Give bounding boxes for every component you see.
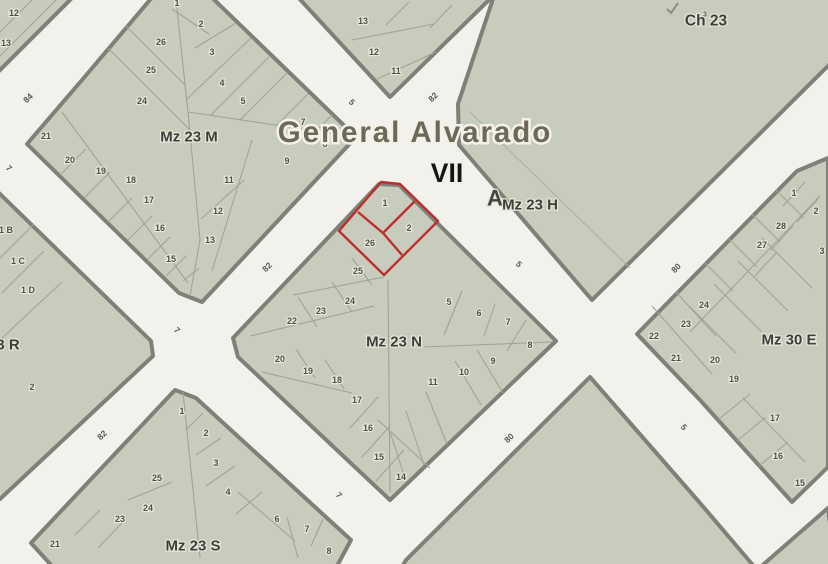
svg-text:2: 2 — [406, 223, 411, 233]
svg-text:3: 3 — [213, 458, 218, 468]
svg-text:13: 13 — [358, 16, 368, 26]
svg-text:2: 2 — [29, 382, 34, 392]
svg-text:8: 8 — [527, 340, 532, 350]
svg-text:7: 7 — [304, 524, 309, 534]
svg-text:27: 27 — [757, 240, 767, 250]
svg-text:3: 3 — [819, 246, 824, 256]
svg-text:24: 24 — [137, 96, 147, 106]
svg-text:1: 1 — [174, 0, 179, 8]
svg-text:1: 1 — [179, 406, 184, 416]
svg-text:24: 24 — [345, 296, 355, 306]
svg-text:6: 6 — [274, 514, 279, 524]
svg-text:22: 22 — [649, 331, 659, 341]
svg-text:15: 15 — [374, 452, 384, 462]
svg-text:6: 6 — [476, 308, 481, 318]
svg-text:16: 16 — [363, 423, 373, 433]
svg-text:Mz 23 N: Mz 23 N — [366, 334, 422, 351]
svg-text:16: 16 — [773, 451, 783, 461]
svg-text:18: 18 — [332, 375, 342, 385]
svg-text:VII: VII — [431, 158, 463, 188]
svg-text:16: 16 — [155, 223, 165, 233]
svg-text:Mz 23 H: Mz 23 H — [502, 197, 558, 214]
svg-text:13: 13 — [1, 38, 11, 48]
svg-text:11: 11 — [224, 175, 234, 185]
svg-text:2: 2 — [198, 19, 203, 29]
svg-text:10: 10 — [459, 367, 469, 377]
svg-text:2: 2 — [813, 206, 818, 216]
svg-text:20: 20 — [710, 355, 720, 365]
svg-text:3: 3 — [209, 47, 214, 57]
svg-text:20: 20 — [65, 155, 75, 165]
svg-text:25: 25 — [152, 473, 162, 483]
svg-text:26: 26 — [156, 37, 166, 47]
svg-text:9: 9 — [284, 156, 289, 166]
svg-text:26: 26 — [365, 238, 375, 248]
svg-text:General Alvarado: General Alvarado — [278, 116, 552, 149]
svg-text:4: 4 — [219, 78, 224, 88]
svg-text:20: 20 — [275, 354, 285, 364]
svg-text:24: 24 — [699, 300, 709, 310]
svg-text:12: 12 — [9, 8, 19, 18]
svg-text:Mz 30 E: Mz 30 E — [761, 332, 816, 349]
svg-text:17: 17 — [144, 195, 154, 205]
svg-text:12: 12 — [213, 206, 223, 216]
svg-text:1 D: 1 D — [21, 285, 36, 295]
svg-text:24: 24 — [143, 503, 153, 513]
svg-text:1: 1 — [382, 198, 387, 208]
svg-text:A: A — [487, 186, 503, 211]
svg-text:21: 21 — [50, 539, 60, 549]
svg-text:4: 4 — [225, 487, 230, 497]
svg-text:15: 15 — [795, 478, 805, 488]
svg-text:12: 12 — [369, 47, 379, 57]
svg-text:25: 25 — [146, 65, 156, 75]
svg-text:22: 22 — [287, 316, 297, 326]
svg-text:7: 7 — [505, 317, 510, 327]
svg-text:5: 5 — [446, 297, 451, 307]
svg-text:25: 25 — [353, 266, 363, 276]
svg-text:2: 2 — [203, 428, 208, 438]
svg-text:11: 11 — [391, 66, 401, 76]
svg-text:1 B: 1 B — [0, 225, 13, 235]
svg-text:13: 13 — [205, 235, 215, 245]
svg-text:17: 17 — [352, 395, 362, 405]
svg-text:17: 17 — [770, 413, 780, 423]
svg-text:19: 19 — [729, 374, 739, 384]
svg-text:11: 11 — [428, 377, 438, 387]
svg-text:23: 23 — [115, 514, 125, 524]
svg-text:1: 1 — [791, 188, 796, 198]
svg-text:14: 14 — [396, 472, 406, 482]
svg-text:15: 15 — [166, 254, 176, 264]
svg-text:3 R: 3 R — [0, 337, 20, 354]
svg-text:19: 19 — [96, 166, 106, 176]
svg-text:8: 8 — [326, 546, 331, 556]
svg-text:23: 23 — [316, 306, 326, 316]
svg-text:1 C: 1 C — [11, 256, 26, 266]
svg-text:Mz 23 S: Mz 23 S — [165, 538, 220, 555]
svg-text:18: 18 — [126, 175, 136, 185]
svg-text:28: 28 — [776, 221, 786, 231]
svg-text:3: 3 — [703, 12, 707, 19]
svg-text:9: 9 — [490, 356, 495, 366]
svg-text:5: 5 — [240, 96, 245, 106]
svg-text:Mz 23 M: Mz 23 M — [160, 129, 218, 146]
svg-text:21: 21 — [671, 353, 681, 363]
svg-text:19: 19 — [303, 366, 313, 376]
svg-text:21: 21 — [41, 131, 51, 141]
svg-text:23: 23 — [681, 319, 691, 329]
